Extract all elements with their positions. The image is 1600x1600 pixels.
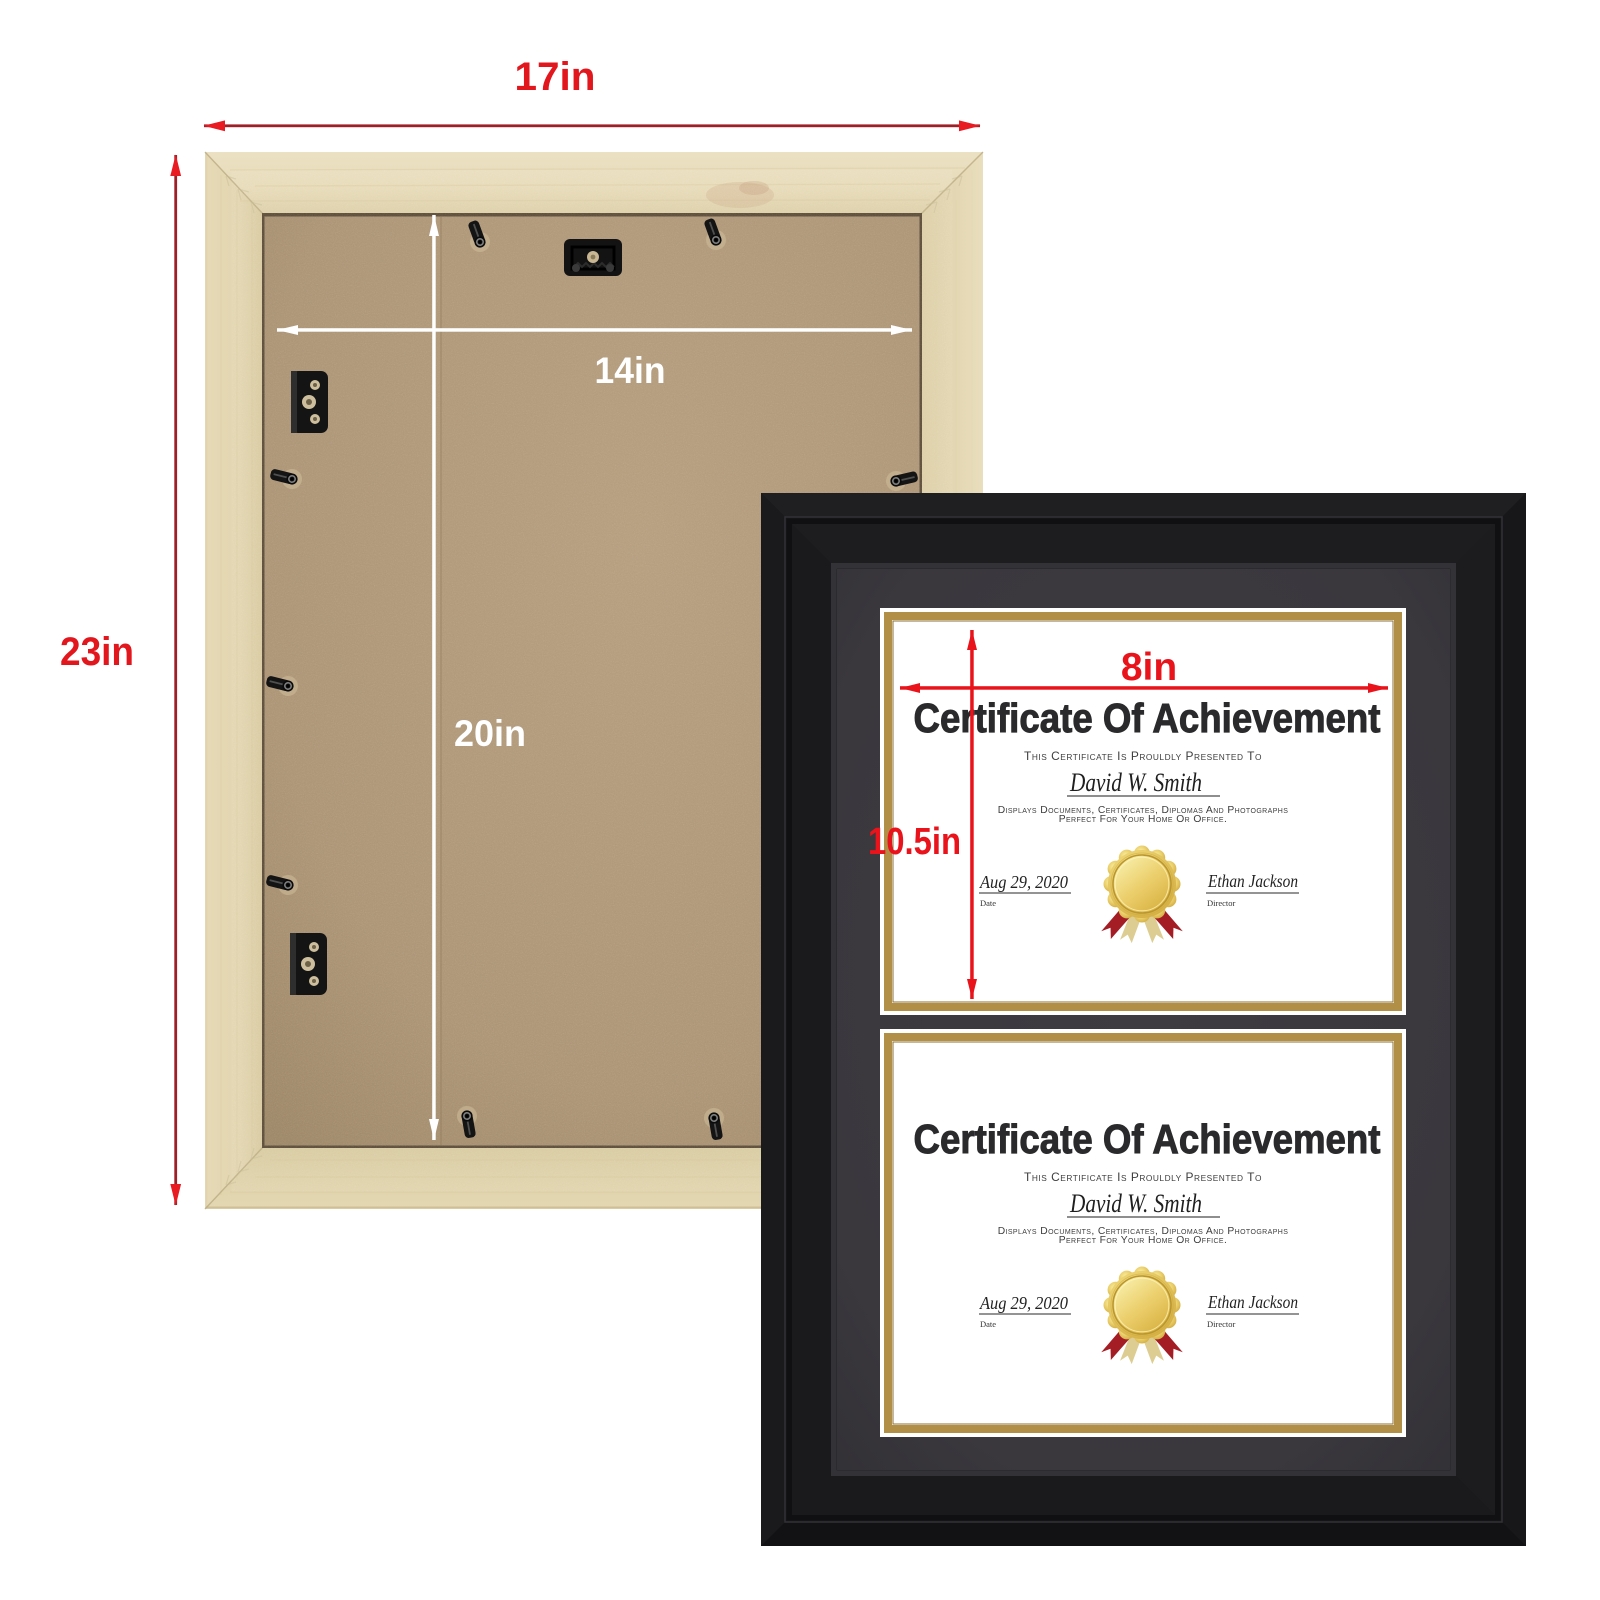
- svg-text:10.5in: 10.5in: [868, 821, 961, 863]
- svg-text:Certificate Of Achievement: Certificate Of Achievement: [914, 1116, 1381, 1162]
- svg-text:Aug 29, 2020: Aug 29, 2020: [979, 872, 1068, 892]
- svg-text:Director: Director: [1207, 898, 1235, 908]
- svg-text:Certificate Of Achievement: Certificate Of Achievement: [914, 695, 1381, 741]
- svg-text:David W. Smith: David W. Smith: [1069, 768, 1202, 797]
- svg-text:Date: Date: [980, 1319, 996, 1329]
- svg-text:Ethan Jackson: Ethan Jackson: [1207, 871, 1298, 891]
- svg-text:Director: Director: [1207, 1319, 1235, 1329]
- svg-text:Perfect For Your Home Or Offic: Perfect For Your Home Or Office.: [1059, 1235, 1228, 1246]
- svg-text:23in: 23in: [60, 630, 134, 674]
- svg-text:Date: Date: [980, 898, 996, 908]
- svg-text:Aug 29, 2020: Aug 29, 2020: [979, 1293, 1068, 1313]
- svg-text:David W. Smith: David W. Smith: [1069, 1189, 1202, 1218]
- svg-text:14in: 14in: [595, 350, 666, 391]
- svg-text:8in: 8in: [1121, 646, 1177, 689]
- svg-text:Ethan Jackson: Ethan Jackson: [1207, 1292, 1298, 1312]
- svg-text:17in: 17in: [515, 55, 596, 99]
- svg-text:This Certificate Is Prouldly P: This Certificate Is Prouldly Presented T…: [1024, 751, 1262, 763]
- svg-text:20in: 20in: [454, 713, 526, 754]
- svg-text:This Certificate Is Prouldly P: This Certificate Is Prouldly Presented T…: [1024, 1172, 1262, 1184]
- svg-text:Perfect For Your Home Or Offic: Perfect For Your Home Or Office.: [1059, 814, 1228, 825]
